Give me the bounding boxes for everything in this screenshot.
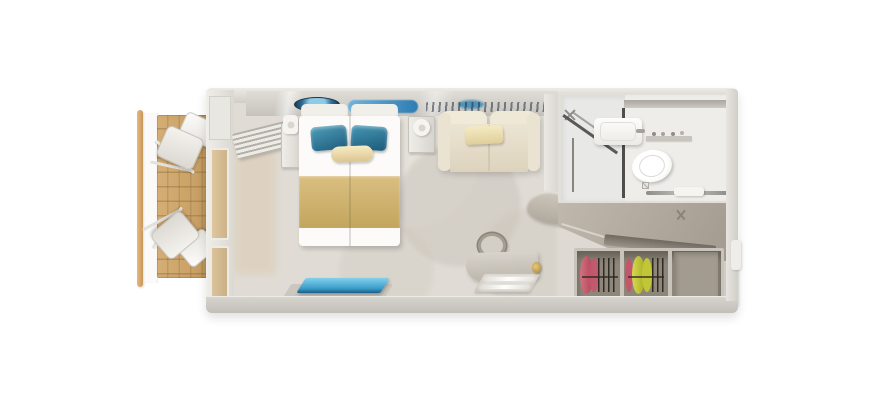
- door-hinge-panel: [731, 240, 741, 270]
- wardrobe-rod: [628, 276, 664, 278]
- balcony-railing: [137, 110, 143, 287]
- sofa-armrest: [527, 113, 540, 171]
- wall-lamp-right: [413, 119, 430, 136]
- wardrobe-rod: [582, 276, 618, 278]
- kettle-accessory: [532, 262, 541, 273]
- vanity-light-panel: [474, 274, 540, 292]
- sofa: [438, 111, 540, 174]
- floor-drain: [642, 182, 649, 189]
- hangers: [598, 258, 616, 292]
- blue-rug: [296, 278, 389, 293]
- hangers: [652, 258, 666, 292]
- wall-lamp-left: [283, 115, 298, 134]
- vanity-shelf-shadow: [624, 100, 728, 108]
- double-bed: [299, 104, 400, 246]
- bathroom-sink: [594, 118, 642, 145]
- sofa-pillow: [465, 125, 504, 145]
- toiletries-shelf: [646, 136, 692, 141]
- cabin-bottom-wall: [206, 296, 738, 313]
- shower-pipe: [572, 138, 574, 192]
- wardrobe-empty-section: [674, 252, 718, 301]
- floor-light-reflection: [234, 150, 276, 275]
- sprinkler-icon: [675, 209, 687, 221]
- balcony-sliding-door: [206, 90, 234, 311]
- bathroom: [558, 92, 734, 204]
- door-frame-panel: [209, 96, 231, 140]
- glass-pane: [210, 148, 229, 240]
- towel: [674, 187, 704, 196]
- toilet: [629, 146, 675, 186]
- cabin-floorplan-render: [0, 0, 880, 400]
- bolster-pillow: [331, 145, 374, 162]
- clothes-yellow: [642, 258, 652, 292]
